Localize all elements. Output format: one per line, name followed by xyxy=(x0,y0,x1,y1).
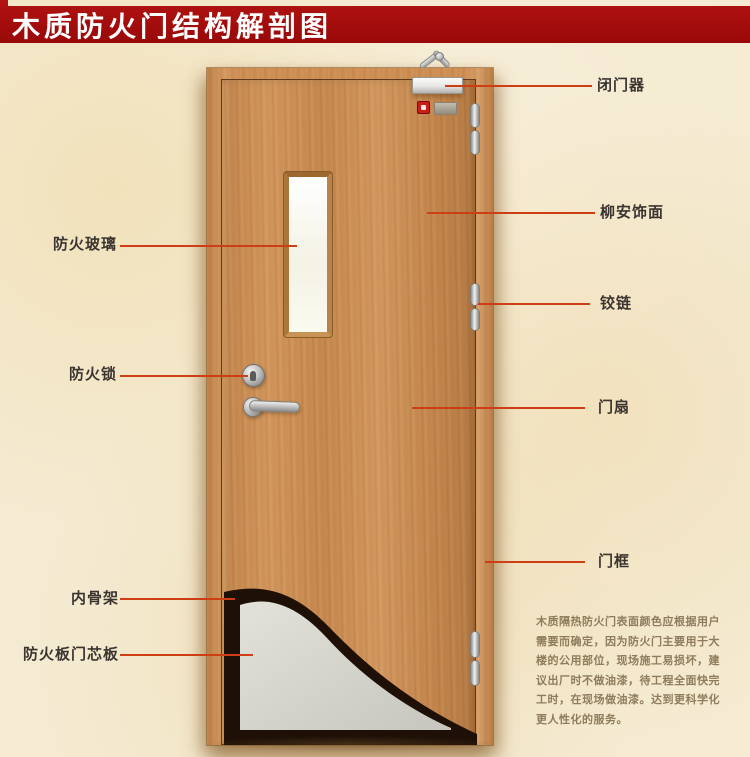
description-text: 木质隔热防火门表面颜色应根据用户 需要而确定，因为防火门主要用于大 楼的公用部位… xyxy=(536,613,726,730)
callout-line-veneer xyxy=(427,212,595,214)
callout-line-inner-skeleton xyxy=(120,598,235,600)
callout-line-door-leaf xyxy=(412,407,585,409)
floor-shadow xyxy=(196,736,504,752)
page-title: 木质防火门结构解剖图 xyxy=(0,5,332,45)
callout-line-door-frame xyxy=(485,561,585,563)
callout-line-core-board xyxy=(120,654,253,656)
callout-line-fire-lock xyxy=(120,375,248,377)
hinge-middle xyxy=(470,283,480,331)
label-inner-skeleton: 内骨架 xyxy=(71,591,119,607)
alarm-indicator xyxy=(417,101,430,114)
label-core-board: 防火板门芯板 xyxy=(23,647,119,663)
strike-plate xyxy=(434,102,457,115)
cutaway-section xyxy=(221,582,477,745)
label-door-frame: 门框 xyxy=(598,554,630,570)
label-fire-lock: 防火锁 xyxy=(69,367,117,383)
glass-pane xyxy=(289,177,327,332)
hinge-top xyxy=(470,103,480,155)
fire-glass-window xyxy=(284,172,332,337)
label-door-closer: 闭门器 xyxy=(597,78,645,94)
label-veneer: 柳安饰面 xyxy=(600,205,664,221)
title-banner: 木质防火门结构解剖图 xyxy=(0,6,750,43)
label-fire-glass: 防火玻璃 xyxy=(53,237,117,253)
callout-line-hinge xyxy=(478,303,590,305)
label-door-leaf: 门扇 xyxy=(598,400,630,416)
callout-line-fire-glass xyxy=(120,245,297,247)
label-hinge: 铰链 xyxy=(600,296,632,312)
page: 木质防火门结构解剖图 xyxy=(0,0,750,757)
door-handle xyxy=(249,400,300,413)
door-closer-pivot xyxy=(435,52,444,61)
callout-line-door-closer xyxy=(445,85,592,87)
